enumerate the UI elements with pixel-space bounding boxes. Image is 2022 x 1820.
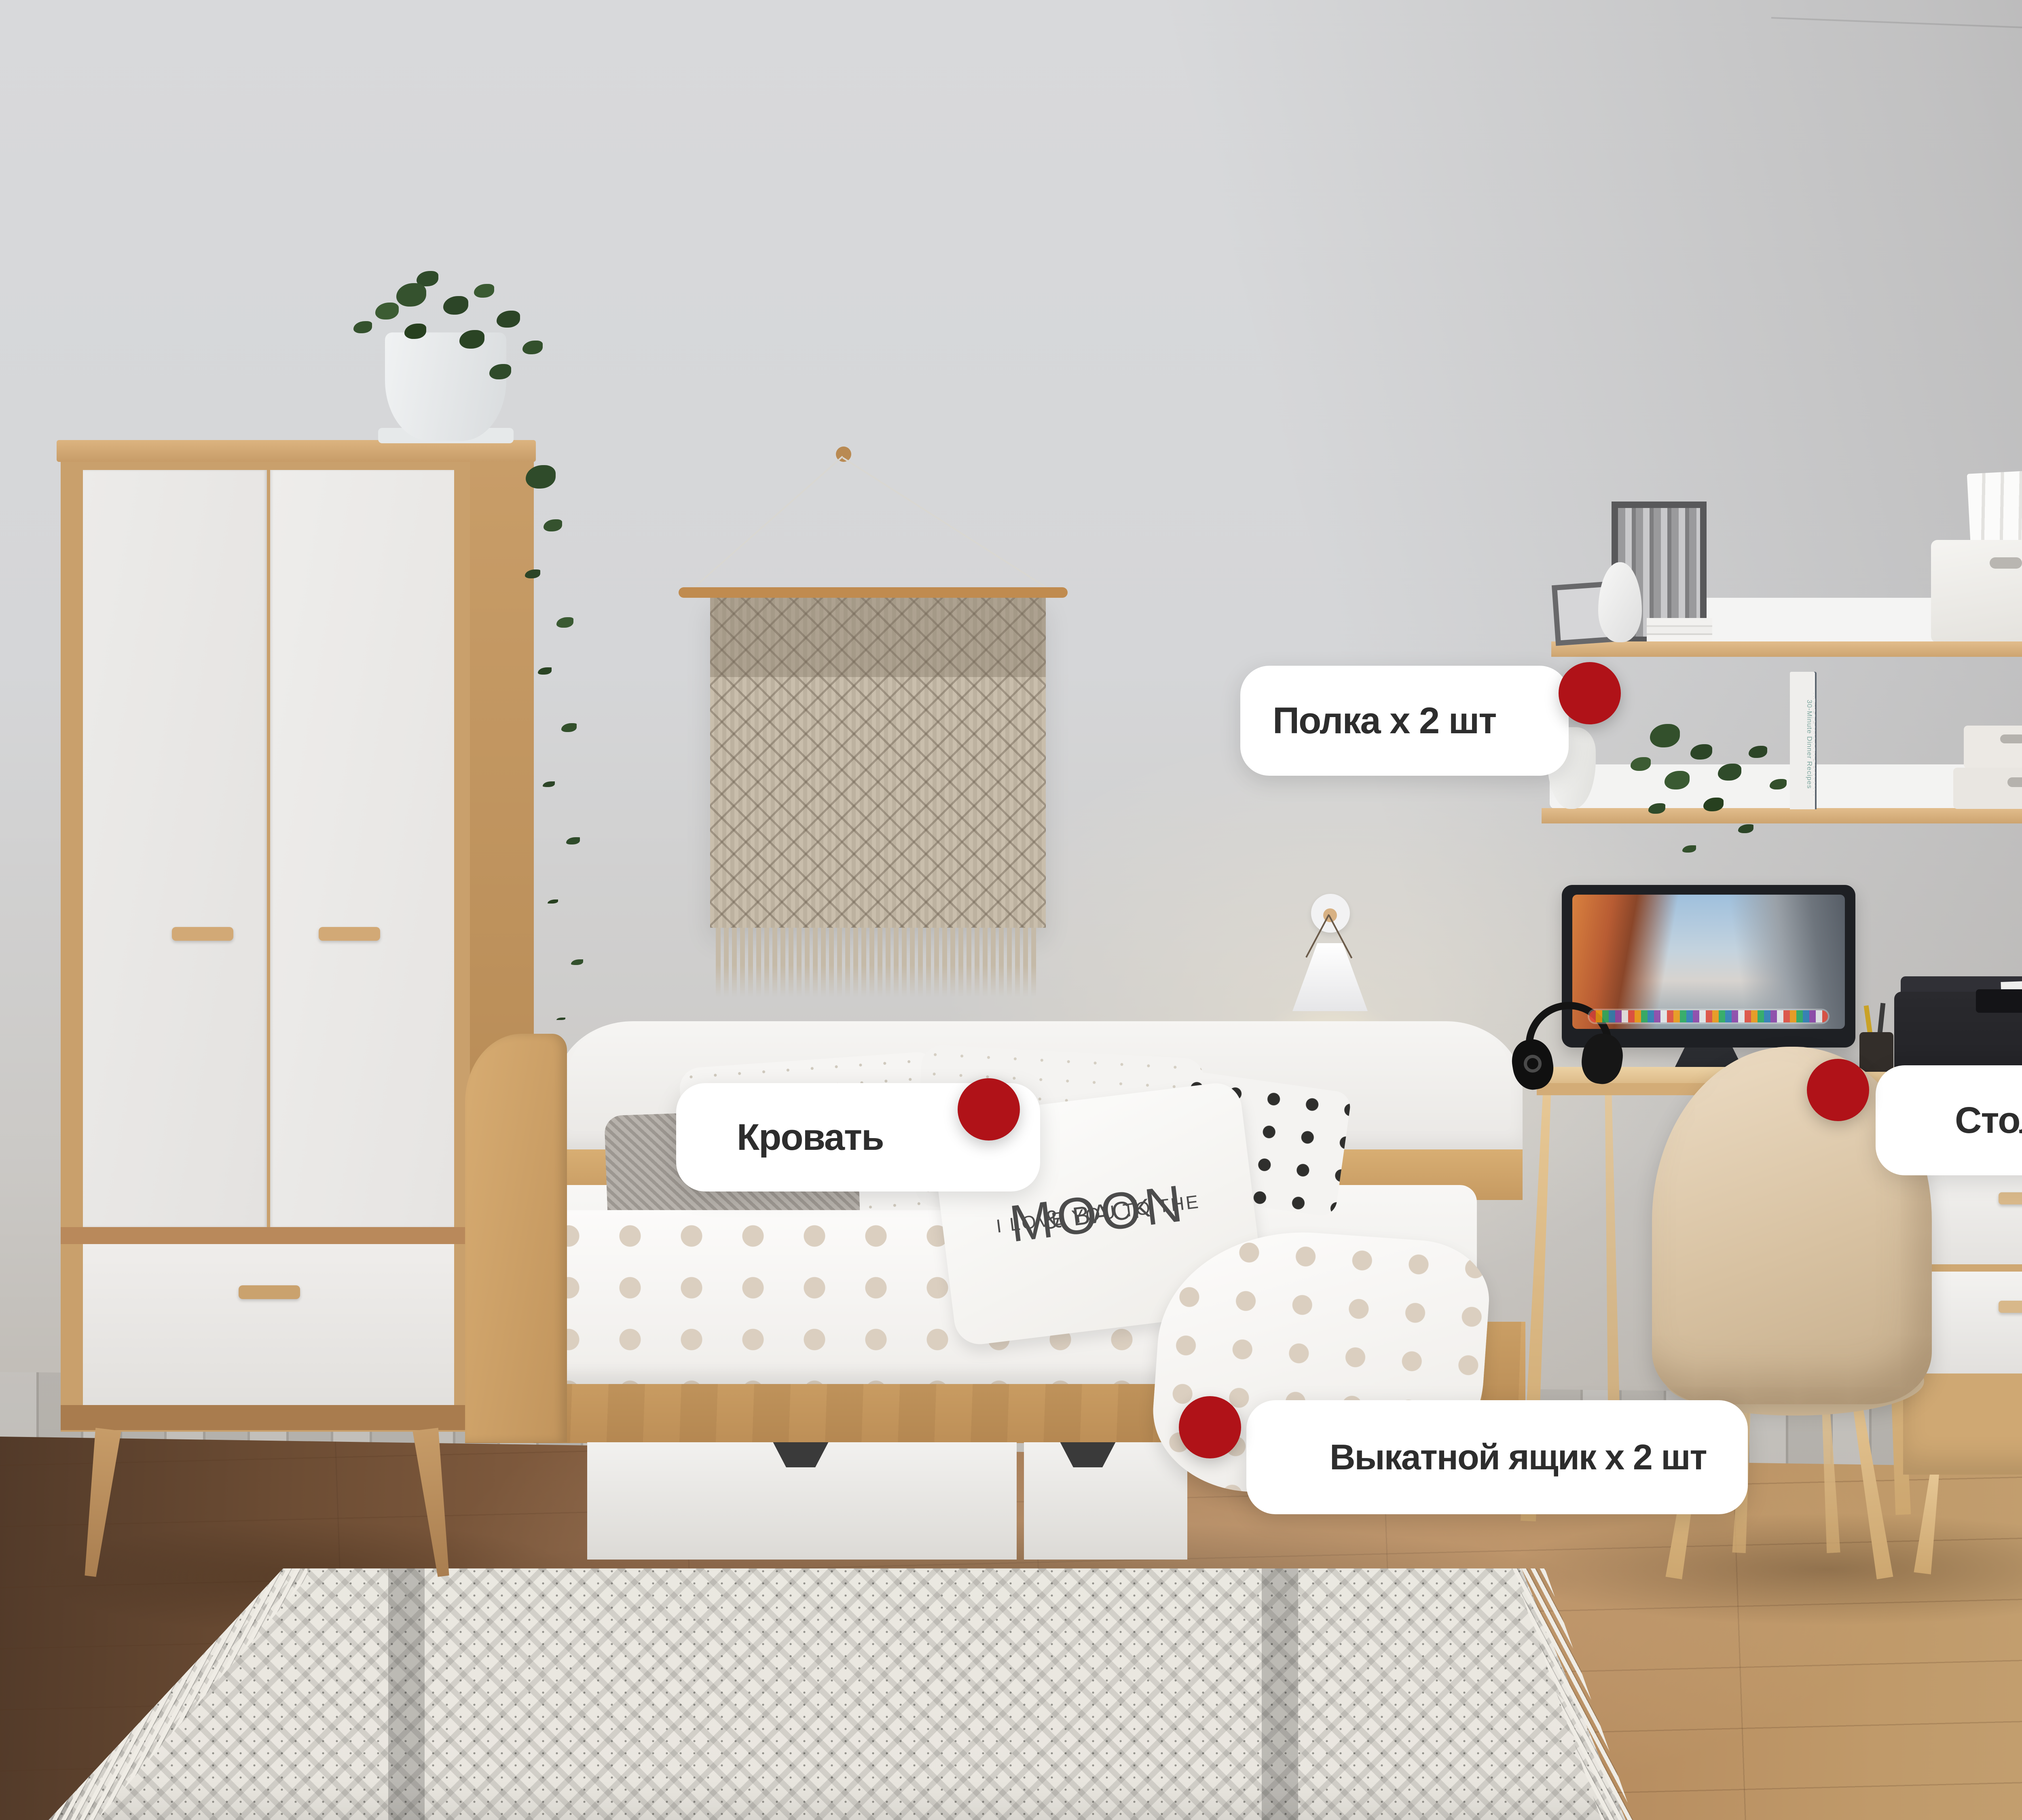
wardrobe-handle-right xyxy=(319,927,380,941)
shelf-upper-board xyxy=(1551,641,2022,657)
label-drawer: Выкатной ящик x 2 шт xyxy=(1246,1400,1748,1514)
book-stack xyxy=(1647,618,1712,641)
plant-pot xyxy=(385,332,506,441)
imac-wallpaper xyxy=(1572,895,1845,1029)
pen-cup xyxy=(1859,1032,1893,1072)
wardrobe-door-left xyxy=(83,470,267,1227)
imac-dock xyxy=(1589,1010,1828,1022)
wardrobe-rail xyxy=(61,1227,470,1244)
wardrobe-handle-left xyxy=(172,927,233,941)
storage-box-lower-large xyxy=(1953,768,2022,809)
label-drawer-text: Выкатной ящик x 2 шт xyxy=(1330,1437,1707,1478)
shelf-lower-board xyxy=(1542,808,2022,823)
hotspot-bed[interactable] xyxy=(958,1078,1020,1141)
label-bed-text: Кровать xyxy=(737,1116,884,1159)
hotspot-drawer[interactable] xyxy=(1179,1396,1241,1458)
wardrobe-drawer-handle xyxy=(239,1285,300,1299)
desk-shadow xyxy=(1504,1513,2022,1626)
storage-box-handle xyxy=(2000,734,2022,743)
label-shelf: Полка x 2 шт xyxy=(1240,666,1569,776)
macrame-fringe xyxy=(716,928,1039,997)
storage-box-upper-handle xyxy=(1990,557,2022,569)
label-desk: Стол письменный xyxy=(1876,1065,2022,1175)
storage-box-handle xyxy=(2007,777,2022,787)
wardrobe-bottom-rail xyxy=(61,1405,470,1430)
storage-box-upper xyxy=(1931,540,2022,643)
label-shelf-text: Полка x 2 шт xyxy=(1273,700,1496,742)
drawer-unit-handle-1 xyxy=(1999,1192,2022,1204)
wardrobe-drawer xyxy=(83,1244,454,1405)
wardrobe-door-right xyxy=(270,470,454,1227)
macrame-wall-hanging xyxy=(710,598,1046,928)
annotated-room-photo: I LOVE YOU TO THE MOON & BACK UNWRAP UVW… xyxy=(0,0,2022,1820)
book-row: UNWRAP UVW MAP BY M.AX QUADRIFY MESH BY … xyxy=(1790,665,1956,809)
drawer-unit-drawer-2 xyxy=(1919,1272,2022,1373)
label-desk-text: Стол письменный xyxy=(1955,1099,2022,1142)
bed-arm-panel xyxy=(465,1034,567,1442)
book-spine: 30-Minute Dinner Recipes xyxy=(1790,672,1813,809)
hotspot-desk[interactable] xyxy=(1807,1059,1869,1121)
macrame-dowel xyxy=(679,587,1068,598)
wardrobe-top xyxy=(57,440,536,462)
drawer-unit-handle-2 xyxy=(1999,1301,2022,1313)
papers-in-box xyxy=(1967,469,2022,543)
printer-output-slot xyxy=(1976,989,2022,1013)
storage-box-lower-small xyxy=(1964,726,2022,768)
headphones-logo-ring xyxy=(1524,1055,1542,1073)
hotspot-shelf[interactable] xyxy=(1559,662,1621,724)
drawer-unit-drawer-1 xyxy=(1919,1165,2022,1264)
